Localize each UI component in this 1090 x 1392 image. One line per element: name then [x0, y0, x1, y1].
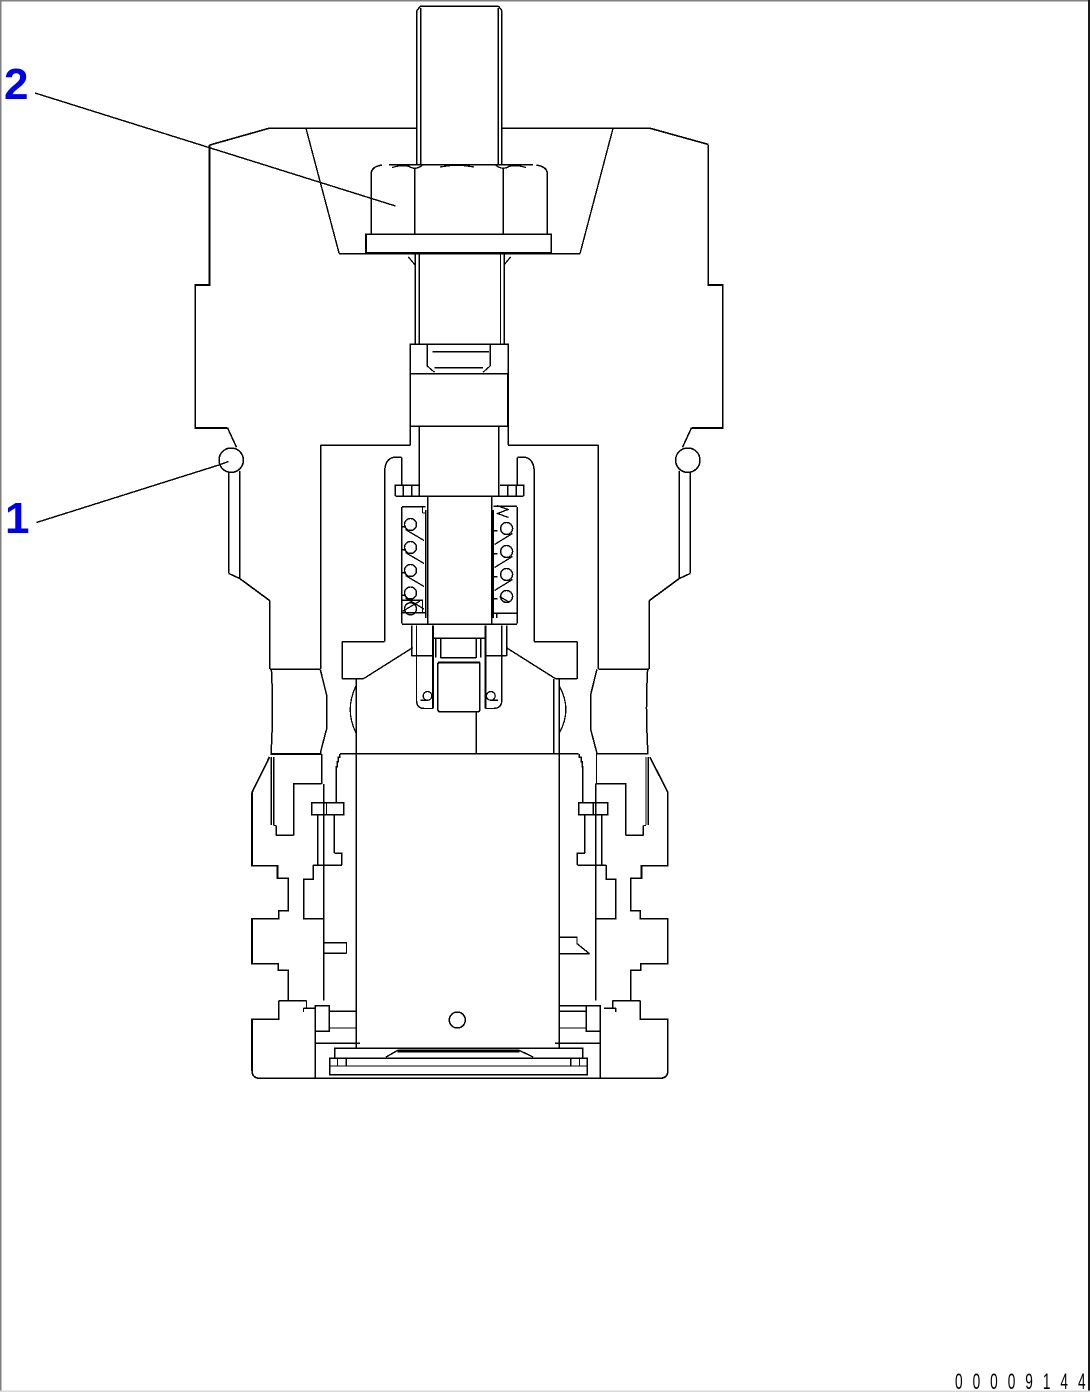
svg-text:00009144: 00009144 — [955, 1369, 1090, 1392]
svg-text:1: 1 — [5, 494, 29, 543]
svg-text:2: 2 — [4, 60, 28, 109]
